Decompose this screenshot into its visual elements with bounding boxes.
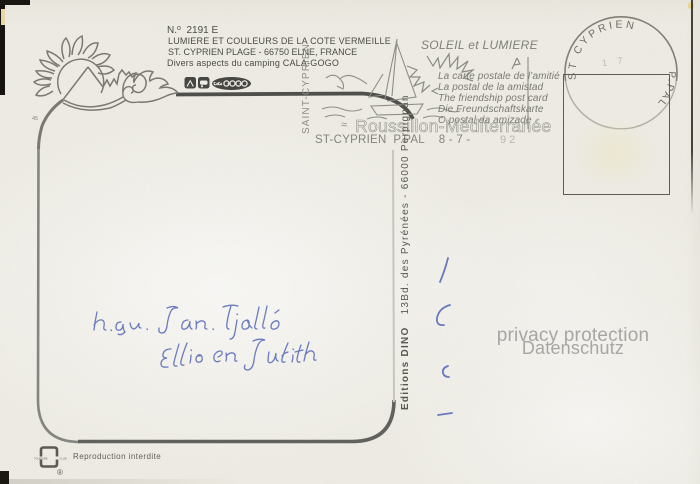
- svg-text:®: ®: [57, 468, 63, 477]
- svg-text:TOURISME: TOURISME: [34, 457, 48, 461]
- svg-text:CLUB: CLUB: [60, 457, 67, 461]
- svg-text:1 7: 1 7: [601, 55, 627, 68]
- svg-text:ST CYPRIEN: ST CYPRIEN: [566, 19, 638, 80]
